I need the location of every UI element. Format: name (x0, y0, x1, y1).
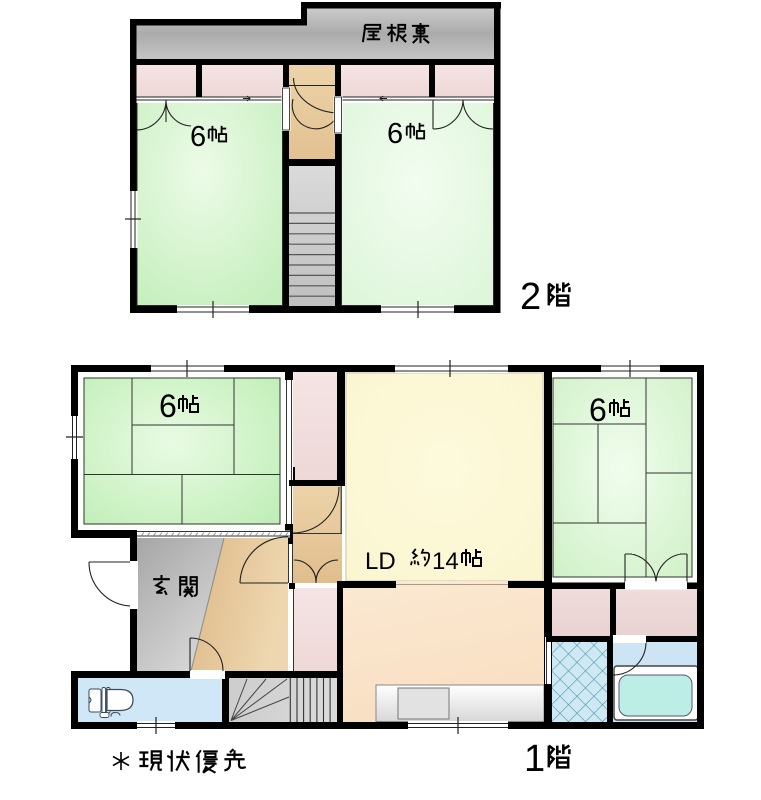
svg-text:6: 6 (190, 121, 206, 153)
svg-text:LD: LD (365, 548, 396, 575)
svg-text:6: 6 (589, 392, 607, 428)
svg-text:6: 6 (159, 388, 177, 424)
svg-text:14: 14 (432, 548, 459, 575)
svg-text:2: 2 (520, 276, 541, 318)
svg-text:1: 1 (524, 738, 545, 780)
svg-text:6: 6 (387, 118, 403, 150)
